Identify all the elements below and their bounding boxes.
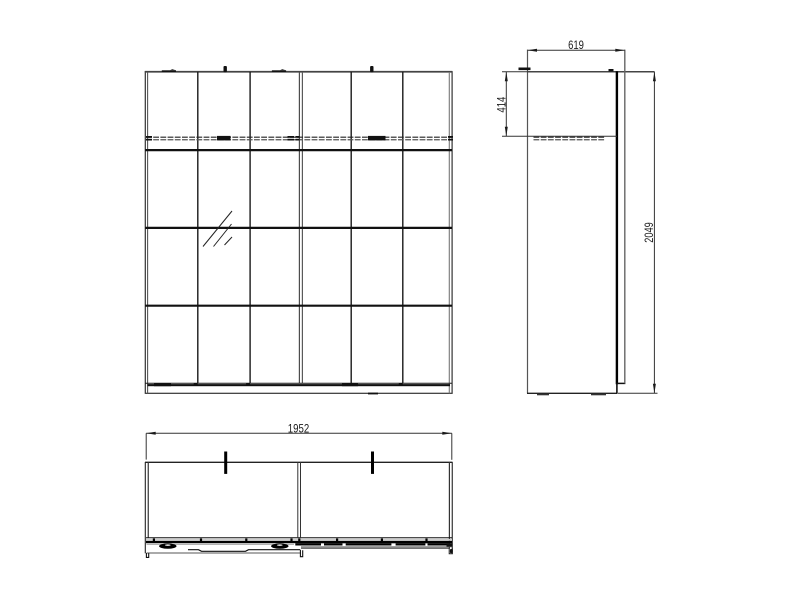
svg-text:414: 414: [497, 96, 509, 113]
svg-text:1952: 1952: [288, 424, 310, 436]
svg-text:619: 619: [568, 40, 584, 52]
svg-text:2049: 2049: [644, 222, 656, 243]
